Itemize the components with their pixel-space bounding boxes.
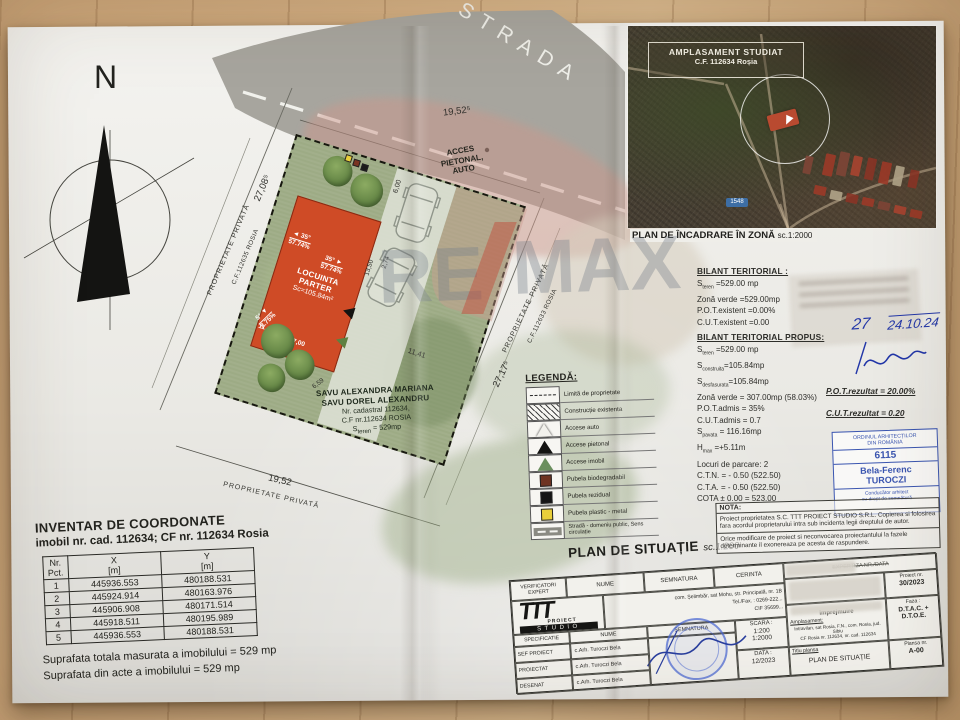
dim-left: 27,08⁵ [252, 173, 273, 203]
bin-biodegradable [352, 159, 361, 168]
stamp-and-signature [633, 613, 767, 687]
bilant-line: Zonă verde =529.00mp [697, 294, 857, 306]
aerial-house [829, 190, 843, 201]
bilant-line: Steren =529.00 mp [697, 278, 857, 294]
photo-of-site-plan: { "compass": {"label": "N"}, "street": {… [0, 0, 960, 720]
aerial-house [909, 209, 922, 219]
coordinate-rows: 1445936.553480188.5312445924.914480163.9… [44, 571, 257, 645]
aerial-house [845, 193, 859, 204]
bilant-line: Sconstruita=105.84mp [697, 360, 857, 376]
table-cell: 5 [46, 631, 71, 645]
bilant-line: Steren =529.00 mp [697, 344, 857, 360]
aerial-house [836, 151, 851, 177]
proiect-nr-cell: Proiect nr. 30/2023 [884, 569, 940, 599]
dim-right: 27,17⁵ [490, 359, 512, 389]
bilant-existent-lines: Steren =529.00 mpZonă verde =529.00mpP.O… [697, 278, 857, 329]
limit-symbol [526, 386, 561, 404]
zone-map-caption: PLAN DE ÎNCADRARE ÎN ZONĂ sc.1:2000 [630, 229, 817, 242]
pot-rezultat: P.O.T.rezultat = 20.00% [826, 386, 915, 396]
bilant-line: C.U.T.existent =0.00 [697, 317, 857, 329]
aerial-house [813, 185, 827, 196]
bin-residual [360, 163, 369, 172]
coordinate-table: Nr.Pct. X[m] Y[m] 1445936.553480188.5312… [42, 547, 257, 645]
north-arrow-needle [77, 125, 130, 302]
faza-cell: Faza : D.T.A.C. + D.T.O.E. [886, 595, 943, 640]
legend-rows: Limită de proprietateConstrucție existen… [526, 383, 659, 540]
plansa-nr-cell: Plansa nr. A-00 [889, 637, 945, 671]
table-cell: 4 [45, 618, 70, 632]
handwritten-number: 27 [851, 315, 871, 334]
zone-map-inset: AMPLASAMENT STUDIAT C.F. 112634 Roșia 15… [628, 26, 936, 228]
aerial-house [822, 153, 836, 177]
tri-green-symbol [528, 454, 563, 472]
road-symbol [530, 522, 565, 540]
aerial-house [878, 161, 892, 185]
legend-label: Stradă - domeniu public, Sens circulație [564, 519, 659, 539]
tri-white-symbol [527, 420, 562, 438]
aerial-house [877, 201, 890, 211]
tree [346, 170, 387, 211]
aerial-house [861, 197, 874, 207]
north-label: N [94, 59, 117, 95]
col-header-point: Nr.Pct. [43, 556, 68, 580]
bilant-propus-title: BILANT TERITORIAL PROPUS: [697, 332, 857, 344]
aerial-site-label: AMPLASAMENT STUDIAT C.F. 112634 Roșia [648, 42, 804, 78]
aerial-house [850, 155, 863, 176]
tri-black-symbol [527, 437, 562, 455]
aerial-house [907, 169, 920, 188]
table-cell: 480188.531 [163, 623, 256, 640]
road-number-badge: 1548 [726, 198, 748, 207]
legend: LEGENDĂ: Limită de proprietateConstrucți… [525, 369, 659, 540]
handwritten-signature [838, 336, 928, 378]
table-cell: 445936.553 [70, 627, 163, 644]
aerial-house [892, 165, 905, 186]
table-cell: 3 [45, 605, 70, 619]
bilant-existent-title: BILANT TERITORIAL : [697, 266, 857, 278]
coordinate-inventory: INVENTAR DE COORDONATE imobil nr. cad. 1… [35, 508, 342, 683]
roof-slope-1: ◄ 35°57.74% [287, 230, 313, 251]
sq-yellow-symbol [530, 505, 565, 523]
bilant-line: P.O.T.existent =0.00% [697, 305, 857, 317]
aerial-house [864, 157, 877, 180]
aerial-house [893, 205, 906, 215]
owner-block: SAVU ALEXANDRA MARIANASAVU DOREL ALEXAND… [295, 382, 457, 441]
hatch-symbol [526, 403, 561, 421]
sq-brown-symbol [529, 471, 564, 489]
table-cell: 2 [44, 592, 69, 606]
cut-rezultat: C.U.T.rezultat = 0.20 [826, 408, 904, 418]
nota-box: NOTA: Proiect proprietatea S.C. TTT PROI… [715, 497, 940, 553]
table-cell: 1 [44, 579, 69, 593]
aerial-house [802, 155, 814, 174]
sq-black-symbol [529, 488, 564, 506]
